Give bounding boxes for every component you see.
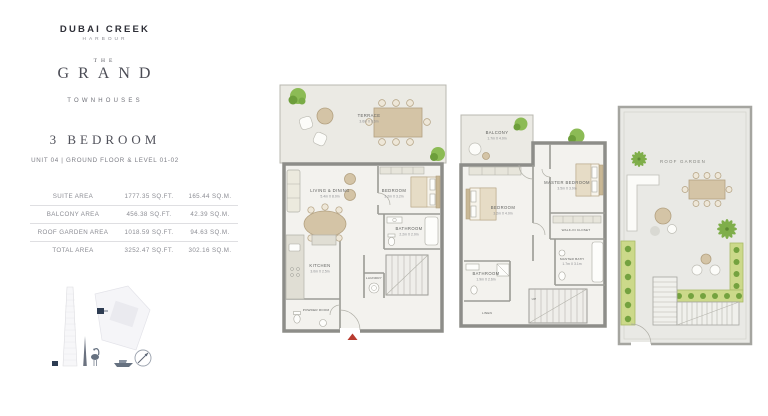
room-label: KITCHEN bbox=[309, 263, 330, 268]
bed bbox=[411, 176, 440, 208]
area-label: BALCONY AREA bbox=[30, 211, 116, 218]
unit-subtitle: UNIT 04 | GROUND FLOOR & LEVEL 01-02 bbox=[9, 157, 201, 164]
stair-label: UP bbox=[532, 297, 537, 301]
location-key-map bbox=[40, 284, 185, 370]
room-label: BALCONY bbox=[486, 130, 509, 135]
room-label: LAUNDRY bbox=[366, 276, 382, 280]
kitchen-island bbox=[312, 235, 336, 245]
flamingo-icon bbox=[91, 349, 99, 367]
area-label: TOTAL AREA bbox=[30, 247, 116, 254]
room-label: BATHROOM bbox=[472, 271, 499, 276]
room-label: ROOF GARDEN bbox=[660, 159, 706, 164]
table-row: ROOF GARDEN AREA 1018.59 SQ.FT. 94.63 SQ… bbox=[30, 224, 238, 242]
room-label: LIVING & DINING bbox=[310, 188, 350, 193]
floorplan-ground-floor: TERRACE 3.6m X 8.6m bbox=[278, 83, 448, 341]
area-label: ROOF GARDEN AREA bbox=[30, 229, 116, 236]
room-dims: 3.0m X 2.5m bbox=[310, 270, 329, 274]
brand-tagline: HARBOUR bbox=[9, 37, 201, 42]
spire-icon bbox=[83, 336, 87, 366]
room-label: LINEN bbox=[482, 311, 492, 315]
room-dims: 3.6m X 8.6m bbox=[359, 120, 378, 124]
staircase bbox=[386, 255, 428, 295]
washing-machine bbox=[369, 283, 379, 293]
floorplan-level-01: BALCONY 1.7m X 4.0m bbox=[455, 113, 610, 330]
collection-name: GRAND bbox=[9, 65, 201, 83]
area-sqm: 302.16 SQ.M. bbox=[182, 247, 238, 254]
room-dims: 5.4m X 8.0m bbox=[320, 195, 339, 199]
boat-icon bbox=[114, 360, 133, 367]
room-dims: 1.7m X 3.1m bbox=[562, 262, 581, 266]
room-dims: 3.2m X 4.0m bbox=[493, 212, 512, 216]
room-label: BEDROOM bbox=[491, 205, 516, 210]
floorplan-roof-garden: ROOF GARDEN bbox=[615, 103, 755, 348]
coffee-table bbox=[345, 174, 356, 185]
brand-logo: DUBAI CREEK HARBOUR THE GRAND TOWNHOUSES bbox=[9, 24, 201, 104]
area-sqm: 165.44 SQ.M. bbox=[182, 193, 238, 200]
wardrobe bbox=[380, 167, 424, 174]
room-label: BEDROOM bbox=[382, 188, 407, 193]
area-sqm: 42.39 SQ.M. bbox=[182, 211, 238, 218]
room-label: TERRACE bbox=[358, 113, 381, 118]
room-label: WALK-IN CLOSET bbox=[562, 228, 591, 232]
sofa bbox=[287, 170, 300, 212]
area-label: SUITE AREA bbox=[30, 193, 116, 200]
table-row: TOTAL AREA 3252.47 SQ.FT. 302.16 SQ.M. bbox=[30, 242, 238, 259]
balcony-chair bbox=[469, 143, 481, 155]
room-dims: 3.5m X 3.9m bbox=[557, 187, 576, 191]
lounge-pouf bbox=[655, 208, 671, 224]
planter bbox=[621, 241, 635, 325]
unit-location-marker bbox=[97, 308, 104, 314]
table-row: SUITE AREA 1777.35 SQ.FT. 165.44 SQ.M. bbox=[30, 188, 238, 206]
page-title: 3 BEDROOM bbox=[9, 132, 201, 148]
terrace: TERRACE 3.6m X 8.6m bbox=[280, 85, 446, 163]
area-sqm: 94.63 SQ.M. bbox=[182, 229, 238, 236]
area-table: SUITE AREA 1777.35 SQ.FT. 165.44 SQ.M. B… bbox=[30, 188, 238, 259]
tower-location-marker bbox=[52, 361, 58, 366]
closet-shelving bbox=[553, 216, 601, 223]
room-dims: 2.2m X 2.0m bbox=[399, 233, 418, 237]
area-sqft: 3252.47 SQ.FT. bbox=[116, 247, 182, 254]
room-dims: 3.2m X 3.2m bbox=[384, 195, 403, 199]
bed bbox=[466, 188, 496, 220]
side-table bbox=[668, 225, 677, 234]
compass-icon bbox=[135, 350, 151, 366]
collection-type: TOWNHOUSES bbox=[9, 98, 201, 104]
room-label: MASTER BATH bbox=[560, 257, 584, 261]
brand-name: DUBAI CREEK bbox=[9, 24, 201, 35]
room-dims: 1.9m X 2.6m bbox=[476, 278, 495, 282]
room-label: BATHROOM bbox=[395, 226, 422, 231]
staircase: UP bbox=[529, 289, 587, 323]
table-row: BALCONY AREA 456.38 SQ.FT. 42.39 SQ.M. bbox=[30, 206, 238, 224]
wardrobe bbox=[469, 167, 521, 175]
collection-the: THE bbox=[9, 58, 201, 64]
room-dims: 1.7m X 4.0m bbox=[487, 137, 506, 141]
entrance-marker bbox=[348, 334, 358, 341]
area-sqft: 1777.35 SQ.FT. bbox=[116, 193, 182, 200]
floorplan-brochure-page: DUBAI CREEK HARBOUR THE GRAND TOWNHOUSES… bbox=[0, 0, 768, 416]
room-label: POWDER ROOM bbox=[303, 308, 330, 312]
area-sqft: 1018.59 SQ.FT. bbox=[116, 229, 182, 236]
room-label: MASTER BEDROOM bbox=[544, 180, 590, 185]
area-sqft: 456.38 SQ.FT. bbox=[116, 211, 182, 218]
